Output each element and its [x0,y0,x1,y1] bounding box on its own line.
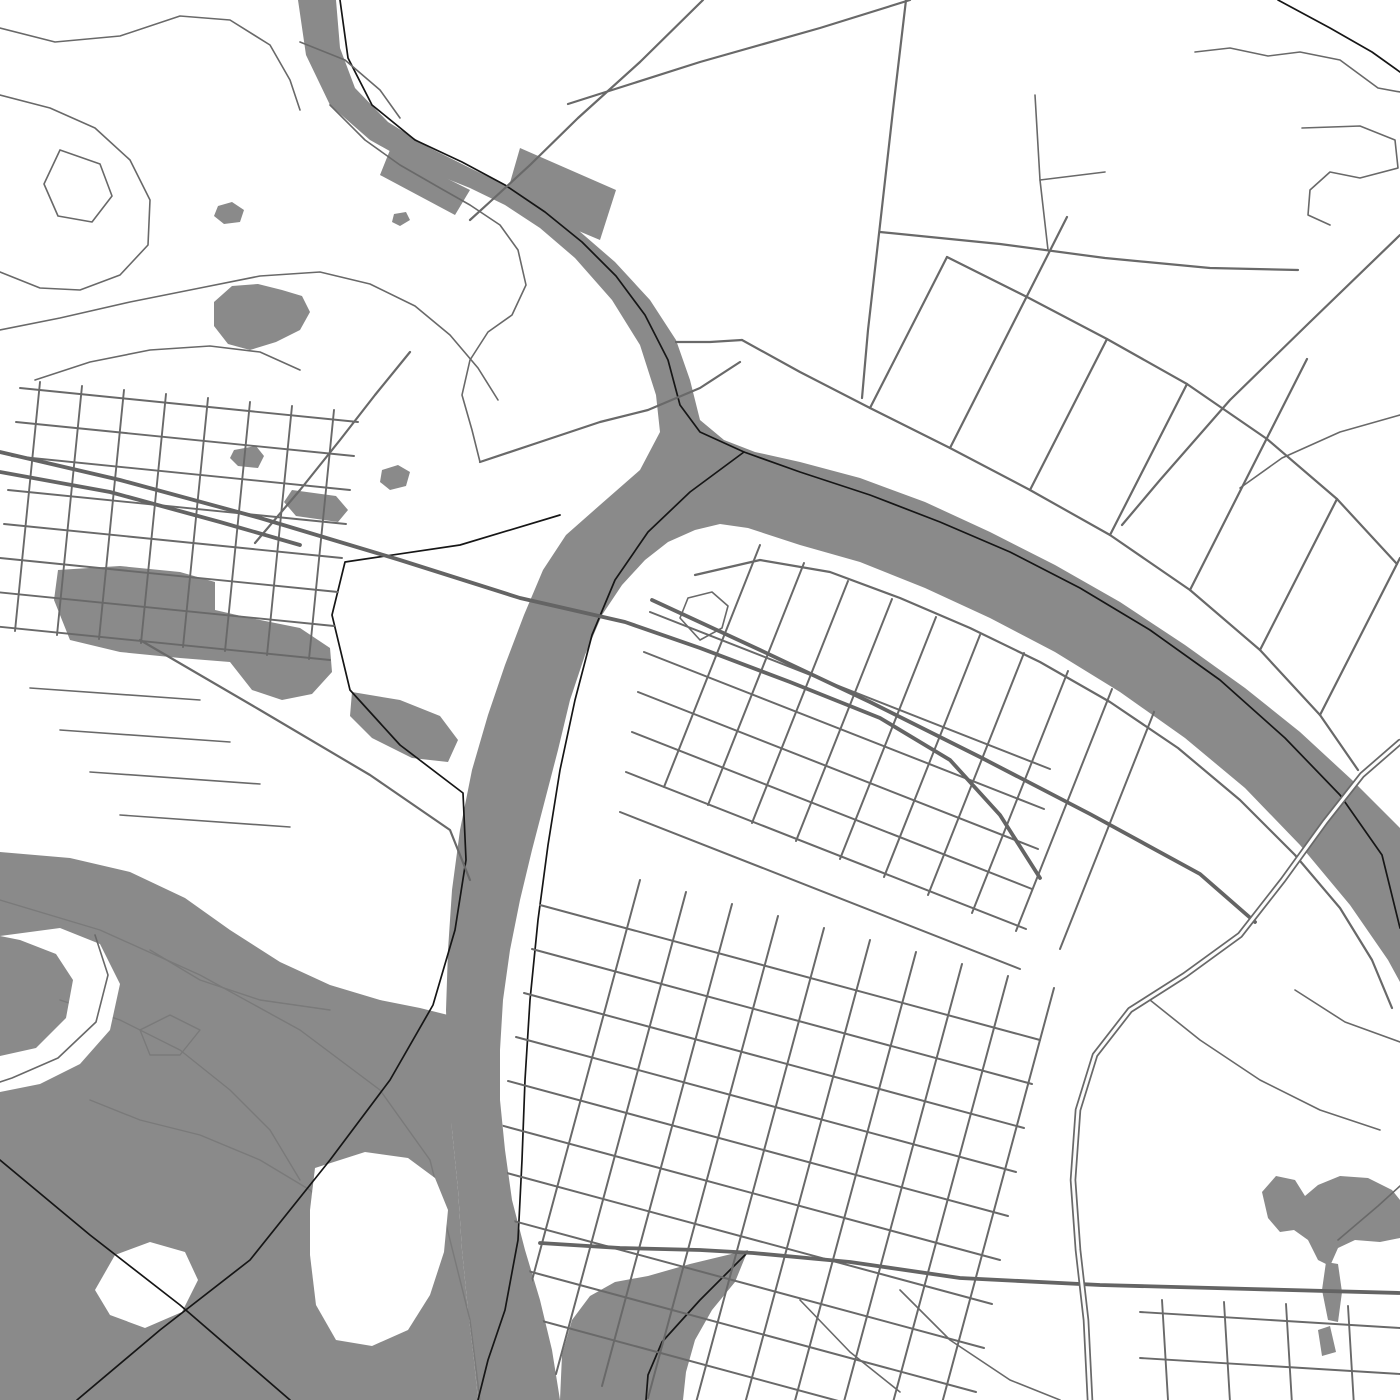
map-svg [0,0,1400,1400]
map-viewport [0,0,1400,1400]
